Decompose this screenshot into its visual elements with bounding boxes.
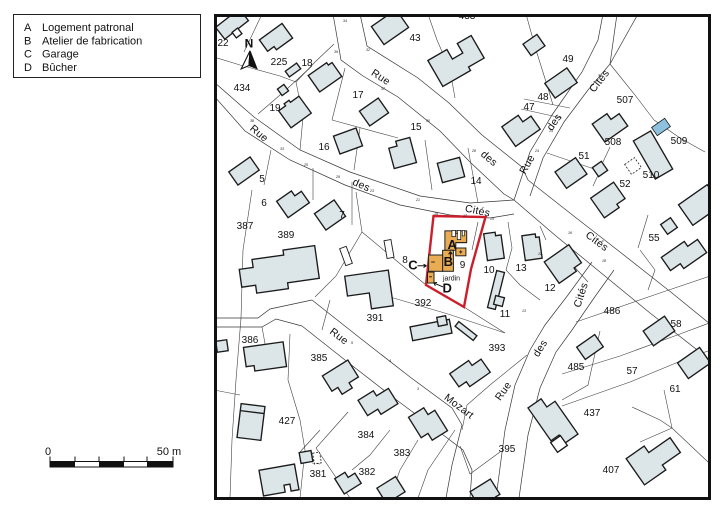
svg-text:A: A (448, 237, 458, 252)
svg-text:395: 395 (499, 444, 516, 455)
svg-text:28: 28 (471, 149, 476, 153)
svg-text:407: 407 (603, 465, 620, 476)
svg-text:16: 16 (568, 231, 572, 235)
svg-text:507: 507 (617, 95, 634, 106)
svg-text:C: C (408, 257, 418, 272)
svg-text:393: 393 (489, 343, 506, 354)
svg-text:B: B (444, 254, 453, 269)
svg-text:385: 385 (311, 353, 328, 364)
svg-text:B: B (24, 35, 31, 47)
svg-text:382: 382 (359, 467, 376, 478)
svg-text:39: 39 (334, 50, 338, 54)
svg-text:383: 383 (394, 448, 411, 459)
svg-text:14: 14 (470, 176, 482, 187)
svg-text:8: 8 (402, 255, 408, 266)
svg-text:32: 32 (366, 48, 370, 52)
svg-text:jardin: jardin (442, 276, 460, 283)
svg-text:49: 49 (562, 54, 574, 65)
svg-text:21: 21 (415, 198, 420, 202)
svg-text:3: 3 (417, 387, 419, 391)
svg-text:11: 11 (500, 309, 511, 320)
svg-text:34: 34 (343, 19, 347, 23)
svg-text:Logement patronal: Logement patronal (42, 22, 134, 34)
svg-text:38: 38 (250, 119, 254, 123)
svg-text:43: 43 (409, 33, 421, 44)
svg-text:19: 19 (434, 212, 438, 216)
svg-text:D: D (24, 62, 32, 74)
svg-text:225: 225 (271, 57, 288, 68)
svg-text:14: 14 (549, 129, 553, 133)
svg-text:57: 57 (626, 366, 638, 377)
svg-text:15: 15 (410, 122, 422, 133)
svg-text:386: 386 (242, 335, 259, 346)
svg-text:387: 387 (237, 221, 254, 232)
svg-text:437: 437 (584, 408, 601, 419)
svg-text:58: 58 (670, 319, 682, 330)
svg-text:392: 392 (415, 298, 432, 309)
svg-text:N: N (245, 37, 254, 51)
svg-text:7: 7 (339, 210, 345, 221)
svg-text:24: 24 (534, 149, 539, 153)
svg-text:381: 381 (310, 469, 327, 480)
svg-text:50 m: 50 m (157, 446, 181, 458)
svg-text:16: 16 (318, 142, 330, 153)
svg-text:Atelier de fabrication: Atelier de fabrication (42, 35, 142, 47)
svg-text:0: 0 (45, 446, 51, 458)
svg-text:427: 427 (279, 416, 296, 427)
svg-text:D: D (443, 280, 452, 295)
svg-text:510: 510 (643, 170, 660, 181)
svg-text:509: 509 (671, 136, 688, 147)
svg-text:391: 391 (367, 313, 384, 324)
svg-text:434: 434 (234, 83, 251, 94)
svg-text:61: 61 (669, 384, 681, 395)
svg-text:52: 52 (619, 179, 631, 190)
svg-text:Garage: Garage (42, 49, 79, 61)
svg-text:18: 18 (301, 58, 313, 69)
svg-text:12: 12 (544, 283, 556, 294)
svg-text:19: 19 (269, 103, 281, 114)
svg-text:29: 29 (335, 175, 340, 179)
svg-text:13: 13 (522, 309, 526, 313)
svg-text:4: 4 (389, 359, 391, 363)
svg-text:12: 12 (538, 252, 542, 256)
svg-text:22: 22 (217, 38, 229, 49)
svg-text:5: 5 (259, 174, 265, 185)
svg-text:10: 10 (483, 265, 495, 276)
svg-text:9: 9 (460, 260, 466, 271)
svg-text:Bûcher: Bûcher (42, 62, 77, 74)
svg-text:486: 486 (604, 306, 621, 317)
svg-text:47: 47 (523, 102, 535, 113)
svg-text:25: 25 (303, 163, 308, 167)
svg-text:55: 55 (648, 233, 660, 244)
svg-text:6: 6 (261, 198, 267, 209)
svg-text:389: 389 (278, 230, 295, 241)
svg-text:15: 15 (490, 217, 494, 221)
svg-text:C: C (24, 49, 32, 61)
svg-text:51: 51 (578, 151, 590, 162)
svg-text:17: 17 (352, 90, 364, 101)
svg-text:485: 485 (568, 362, 585, 373)
svg-text:30: 30 (426, 119, 430, 123)
svg-text:508: 508 (605, 137, 622, 148)
svg-text:5: 5 (351, 341, 353, 345)
svg-text:13: 13 (515, 263, 527, 274)
svg-text:384: 384 (358, 430, 375, 441)
svg-text:33: 33 (280, 147, 284, 151)
svg-text:A: A (24, 22, 32, 34)
svg-text:18: 18 (602, 259, 606, 263)
svg-text:48: 48 (537, 92, 549, 103)
svg-text:23: 23 (369, 189, 374, 193)
